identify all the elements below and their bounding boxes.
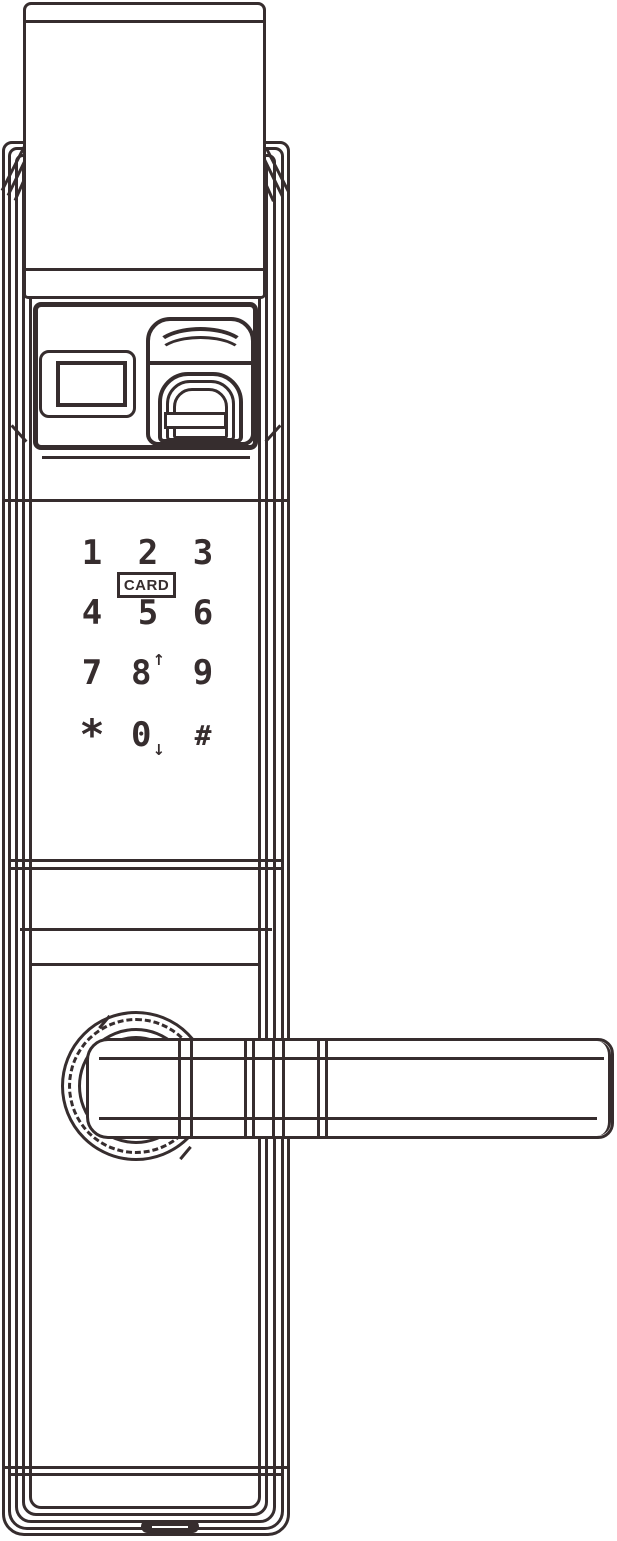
lever-joint-line-4 <box>252 1041 255 1136</box>
key-3[interactable]: 3 <box>178 533 228 573</box>
bottom-divider-1 <box>2 1466 290 1469</box>
lever-bottom-highlight-line <box>99 1117 597 1120</box>
display-window <box>56 361 127 407</box>
top-cover-upper-line <box>26 20 263 23</box>
lever-joint-line-5 <box>272 1041 275 1136</box>
fingerprint-cover-base-line <box>150 361 251 365</box>
mid-divider-1 <box>20 928 272 931</box>
lever-joint-line-1 <box>178 1041 181 1136</box>
key-0[interactable]: 0 ↓ <box>123 715 173 755</box>
key-8-up-arrow-icon: ↑ <box>152 651 165 669</box>
sensor-panel-ledge-line <box>42 456 250 459</box>
face-divider-top <box>2 499 290 502</box>
mid-divider-2 <box>29 963 261 966</box>
key-8-label: 8 <box>131 653 151 693</box>
key-hash-label: # <box>195 719 212 752</box>
door-lock-illustration: 1 2 3 CARD 4 5 6 7 8 ↑ 9 * 0 ↓ # <box>0 0 617 1541</box>
key-9-label: 9 <box>193 653 213 693</box>
key-1[interactable]: 1 <box>67 533 117 573</box>
key-0-down-arrow-icon: ↓ <box>152 741 165 759</box>
lever-joint-line-7 <box>317 1041 320 1136</box>
top-cover-block <box>23 2 266 299</box>
fingerprint-platen-bar <box>164 412 227 429</box>
key-5[interactable]: 5 <box>123 593 173 633</box>
key-3-label: 3 <box>193 533 213 573</box>
key-5-label: 5 <box>138 593 158 633</box>
charging-port-slot <box>152 1526 188 1528</box>
keypad-bottom-line-1 <box>8 859 284 862</box>
key-hash[interactable]: # <box>178 715 228 755</box>
top-cover-lower-line <box>26 268 263 271</box>
key-6[interactable]: 6 <box>178 593 228 633</box>
key-9[interactable]: 9 <box>178 653 228 693</box>
key-7[interactable]: 7 <box>67 653 117 693</box>
lever-joint-line-8 <box>325 1041 328 1136</box>
keypad-bottom-line-2 <box>8 867 284 870</box>
fingerprint-cover-arc-inner <box>156 336 245 376</box>
lever-end-cap <box>597 1041 611 1136</box>
fingerprint-module[interactable] <box>146 317 255 446</box>
key-1-label: 1 <box>82 533 102 573</box>
key-star[interactable]: * <box>67 715 117 755</box>
bottom-divider-2 <box>8 1473 284 1476</box>
key-6-label: 6 <box>193 593 213 633</box>
key-4[interactable]: 4 <box>67 593 117 633</box>
lever-top-highlight-line <box>99 1057 604 1060</box>
key-4-label: 4 <box>82 593 102 633</box>
key-2[interactable]: 2 <box>123 533 173 573</box>
card-reader-label-text: CARD <box>124 577 169 594</box>
key-star-label: * <box>79 703 104 767</box>
handle-lever[interactable] <box>86 1038 614 1139</box>
lever-joint-line-2 <box>190 1041 193 1136</box>
key-0-label: 0 <box>131 715 151 755</box>
lever-joint-line-3 <box>244 1041 247 1136</box>
key-2-label: 2 <box>138 533 158 573</box>
key-8[interactable]: 8 ↑ <box>123 653 173 693</box>
key-7-label: 7 <box>82 653 102 693</box>
lever-joint-line-6 <box>282 1041 285 1136</box>
